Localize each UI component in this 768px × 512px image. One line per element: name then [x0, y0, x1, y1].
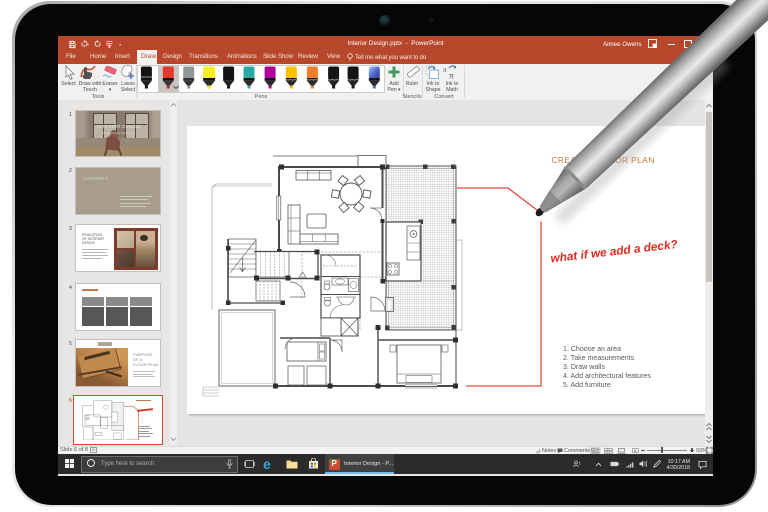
- svg-text:what if we add a deck?: what if we add a deck?: [550, 237, 679, 265]
- svg-text:2. Take measurements: 2. Take measurements: [563, 355, 635, 362]
- svg-text:3. Draw walls: 3. Draw walls: [563, 364, 605, 371]
- svg-text:5. Add furniture: 5. Add furniture: [563, 382, 611, 389]
- svg-text:π: π: [443, 66, 447, 74]
- svg-text:1. Choose an area: 1. Choose an area: [563, 346, 621, 353]
- svg-text:π: π: [449, 71, 454, 81]
- svg-text:4. Add architectural features: 4. Add architectural features: [563, 373, 651, 380]
- svg-text:CREATE A FLOOR PLAN: CREATE A FLOOR PLAN: [551, 155, 654, 165]
